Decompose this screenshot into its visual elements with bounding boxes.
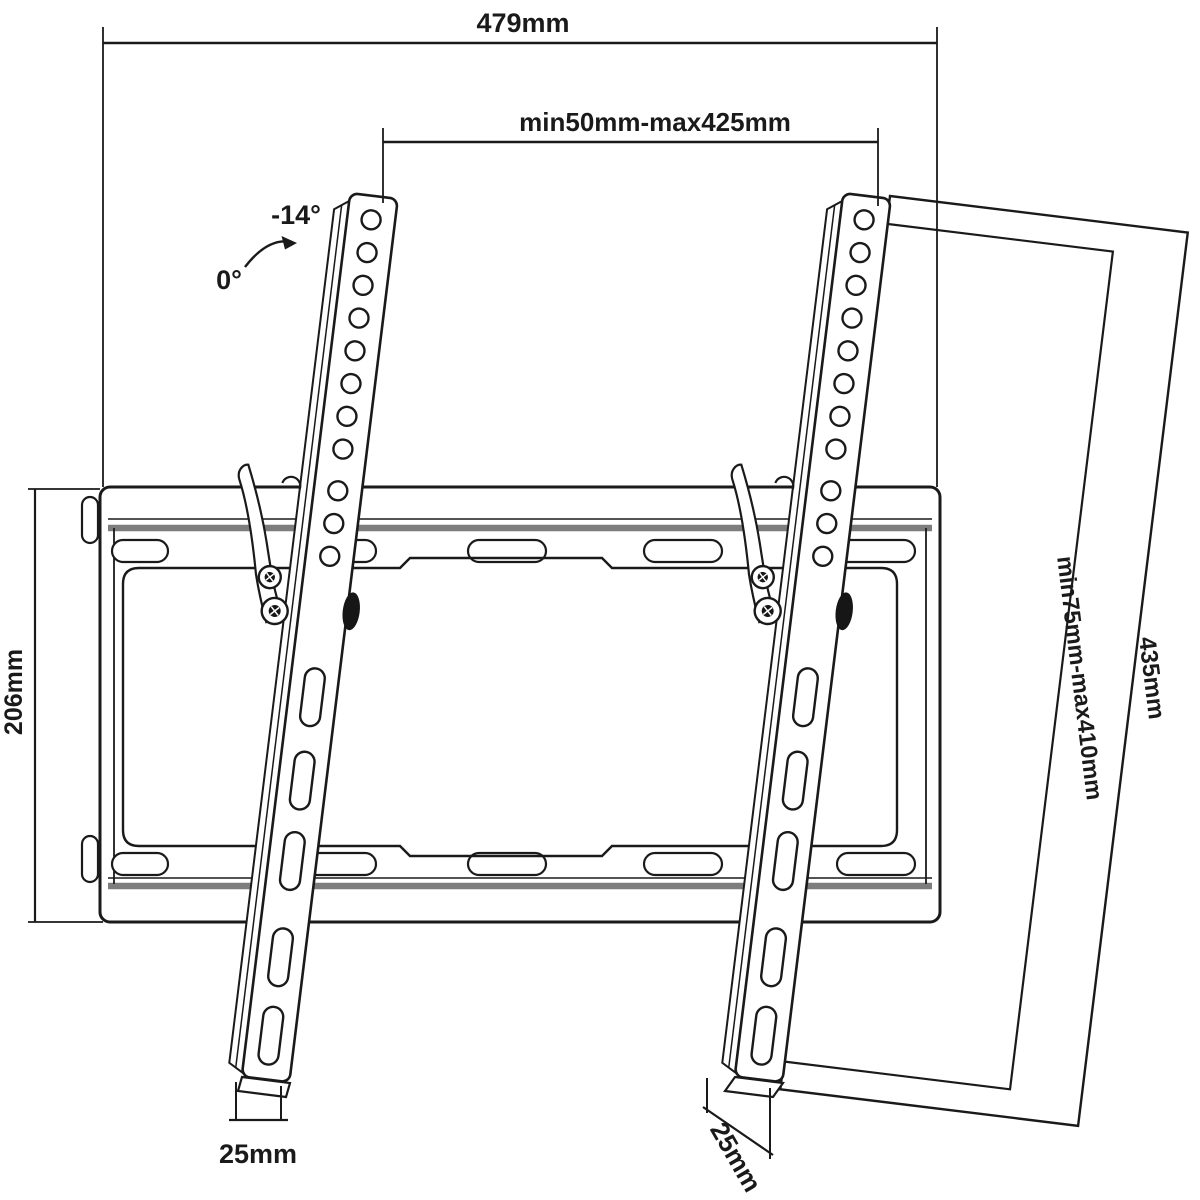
technical-drawing-canvas: min75mm-max410mm 435mm <box>0 0 1200 1200</box>
vesa-width-range-label: min50mm-max425mm <box>519 107 791 137</box>
tilt-arrowhead <box>282 236 298 250</box>
tilt-rest-label: 0° <box>216 265 242 295</box>
right-foot-dimension: 25mm <box>703 1077 783 1197</box>
tilt-max-label: -14° <box>271 200 321 230</box>
wall-plate-side-tab <box>82 497 98 543</box>
wall-plate-side-tab <box>82 836 98 882</box>
total-width-label: 479mm <box>476 8 569 38</box>
tv-mount-diagram: min75mm-max410mm 435mm <box>0 0 1200 1200</box>
left-foot-dimension: 25mm <box>219 1077 297 1169</box>
tilt-annotation: -14° 0° <box>216 200 321 295</box>
dimension-vesa-width: min50mm-max425mm <box>383 107 878 206</box>
hook-depth-right-label: 25mm <box>704 1117 768 1197</box>
tv-height-label: 435mm <box>1133 635 1170 720</box>
plate-height-label: 206mm <box>0 649 28 735</box>
dimension-tv-height: 435mm <box>1133 635 1170 720</box>
hook-depth-left-label: 25mm <box>219 1139 297 1169</box>
